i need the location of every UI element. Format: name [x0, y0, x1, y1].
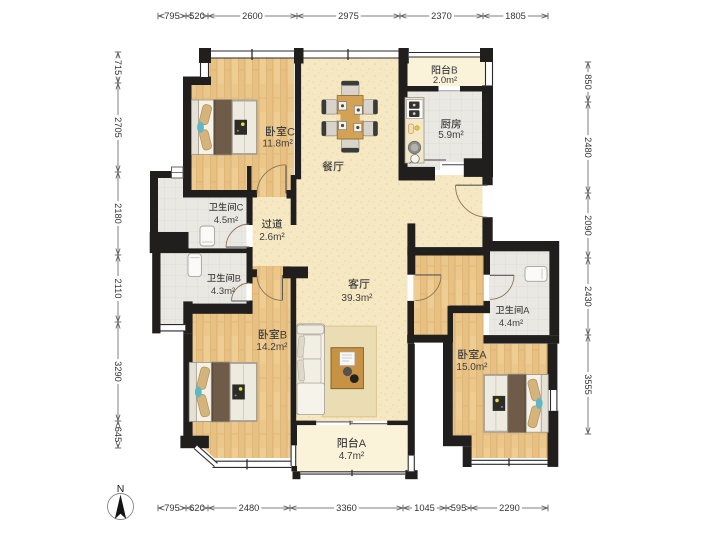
- svg-text:595: 595: [451, 503, 467, 513]
- svg-text:795: 795: [164, 503, 180, 513]
- svg-text:620: 620: [189, 503, 205, 513]
- svg-text:2705: 2705: [113, 117, 123, 138]
- svg-text:2.6m²: 2.6m²: [259, 232, 285, 243]
- svg-text:11.8m²: 11.8m²: [262, 138, 293, 149]
- svg-text:4.5m²: 4.5m²: [214, 215, 238, 226]
- svg-text:1805: 1805: [505, 11, 526, 21]
- svg-text:14.2m²: 14.2m²: [256, 342, 288, 353]
- svg-text:2180: 2180: [113, 203, 123, 224]
- svg-text:2090: 2090: [583, 215, 593, 236]
- svg-text:2110: 2110: [113, 279, 123, 299]
- svg-text:2290: 2290: [499, 503, 520, 513]
- svg-text:A: A: [479, 349, 487, 361]
- svg-text:B: B: [235, 273, 241, 283]
- svg-text:4.3m²: 4.3m²: [211, 286, 235, 297]
- svg-text:3555: 3555: [583, 374, 593, 395]
- svg-text:4.7m²: 4.7m²: [339, 451, 365, 462]
- svg-text:4.4m²: 4.4m²: [499, 318, 523, 329]
- svg-text:C: C: [287, 126, 295, 138]
- svg-text:5.9m²: 5.9m²: [438, 130, 464, 141]
- svg-text:2370: 2370: [431, 11, 452, 21]
- svg-text:645: 645: [113, 427, 123, 443]
- svg-text:3290: 3290: [113, 361, 123, 382]
- svg-text:N: N: [117, 483, 125, 495]
- svg-text:2975: 2975: [338, 11, 359, 21]
- svg-text:39.3m²: 39.3m²: [341, 293, 373, 304]
- svg-text:C: C: [237, 202, 244, 212]
- svg-text:A: A: [359, 438, 367, 450]
- svg-text:2600: 2600: [242, 11, 263, 21]
- svg-text:15.0m²: 15.0m²: [456, 362, 488, 373]
- svg-text:850: 850: [583, 74, 593, 90]
- svg-text:520: 520: [189, 11, 205, 21]
- svg-text:715: 715: [113, 60, 123, 76]
- svg-text:A: A: [523, 305, 530, 315]
- svg-text:2430: 2430: [583, 286, 593, 307]
- svg-text:2480: 2480: [239, 503, 260, 513]
- svg-text:795: 795: [164, 11, 180, 21]
- svg-text:3360: 3360: [336, 503, 357, 513]
- svg-text:1045: 1045: [414, 503, 435, 513]
- svg-text:2480: 2480: [583, 137, 593, 158]
- svg-text:B: B: [280, 329, 287, 341]
- svg-text:2.0m²: 2.0m²: [433, 75, 457, 86]
